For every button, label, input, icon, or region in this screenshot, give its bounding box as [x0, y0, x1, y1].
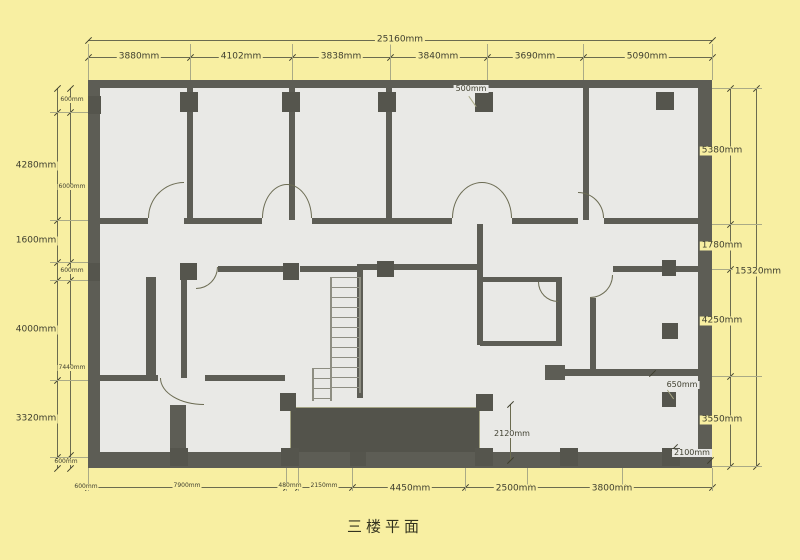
witness-line — [390, 44, 391, 80]
dimension-label: 2100mm — [672, 449, 712, 457]
wall — [613, 266, 698, 272]
wall — [477, 224, 483, 280]
column — [350, 452, 366, 466]
witness-line — [712, 44, 713, 80]
witness-line — [465, 468, 466, 491]
wall — [480, 341, 562, 346]
dimension-label: 2500mm — [494, 485, 538, 494]
witness-line — [50, 262, 88, 263]
dimension-line — [88, 57, 712, 58]
column — [378, 92, 396, 112]
dimension-tick — [67, 465, 74, 472]
dimension-label: 3550mm — [700, 416, 744, 425]
witness-line — [712, 468, 713, 491]
witness-line — [88, 44, 89, 80]
dimension-label: 3320mm — [14, 415, 58, 424]
column — [280, 393, 296, 411]
column — [475, 448, 493, 466]
dimension-label: 4102mm — [219, 53, 263, 62]
staircase — [312, 368, 332, 401]
column — [662, 323, 678, 339]
wall — [545, 365, 565, 380]
floor-plan: 三楼平面 25160mm3880mm4102mm3838mm3840mm3690… — [0, 0, 800, 560]
dimension-label: 4000mm — [14, 326, 58, 335]
column — [475, 92, 493, 112]
wall — [698, 80, 712, 468]
column — [180, 92, 198, 112]
column — [377, 261, 394, 277]
wall — [358, 264, 477, 270]
dimension-tick — [709, 37, 716, 44]
wall — [100, 218, 148, 224]
wall — [184, 218, 262, 224]
column — [476, 394, 493, 411]
dimension-label: 3690mm — [513, 53, 557, 62]
dimension-label: 5090mm — [625, 53, 669, 62]
dimension-label: 15320mm — [733, 268, 783, 277]
dimension-label: 500mm — [454, 85, 489, 93]
dimension-label: 6000mm — [58, 184, 87, 190]
dimension-label: 2150mm — [310, 483, 339, 489]
dimension-label: 25160mm — [375, 36, 425, 45]
column — [656, 92, 674, 110]
witness-line — [712, 466, 762, 467]
witness-line — [352, 468, 353, 491]
column — [170, 448, 188, 466]
column — [88, 263, 100, 281]
dimension-label: 1600mm — [14, 237, 58, 246]
dimension-label: 1780mm — [700, 242, 744, 251]
wall — [300, 266, 358, 272]
floor-plan-title: 三楼平面 — [347, 516, 423, 537]
dimension-label: 7900mm — [173, 483, 202, 489]
witness-line — [712, 88, 762, 89]
witness-line — [50, 280, 88, 281]
witness-line — [292, 44, 293, 80]
dimension-label: 2120mm — [492, 430, 532, 438]
dimension-label: 3880mm — [117, 53, 161, 62]
witness-line — [712, 224, 762, 225]
wall — [205, 375, 285, 381]
dimension-label: 3840mm — [416, 53, 460, 62]
dimension-tick — [54, 465, 61, 472]
dimension-label: 4250mm — [700, 317, 744, 326]
witness-line — [50, 112, 88, 113]
dimension-label: 3838mm — [319, 53, 363, 62]
witness-line — [190, 44, 191, 80]
column — [282, 92, 300, 112]
witness-line — [712, 376, 762, 377]
column — [560, 448, 578, 466]
column — [180, 263, 197, 280]
wall — [218, 266, 283, 272]
column — [662, 260, 676, 276]
wall — [512, 218, 578, 224]
wall — [477, 277, 483, 345]
dimension-label: 600mm — [59, 268, 84, 274]
wall — [181, 280, 187, 378]
column — [283, 263, 299, 280]
wall — [590, 298, 596, 373]
wall — [146, 277, 156, 378]
staircase — [330, 277, 361, 393]
dimension-label: 3800mm — [590, 485, 634, 494]
wall — [312, 218, 452, 224]
wall — [170, 405, 186, 452]
dimension-label: 4280mm — [14, 162, 58, 171]
dimension-line — [756, 88, 757, 466]
dimension-label: 480mm — [277, 483, 302, 489]
column — [88, 96, 101, 114]
dimension-label: 600mm — [73, 484, 98, 490]
witness-line — [50, 380, 88, 381]
wall — [604, 218, 698, 224]
dimension-label: 600mm — [53, 459, 78, 465]
witness-line — [487, 44, 488, 80]
column — [281, 448, 299, 466]
witness-line — [583, 44, 584, 80]
wall — [100, 375, 158, 381]
wall — [558, 369, 698, 376]
dimension-label: 4450mm — [388, 485, 432, 494]
dimension-label: 5380mm — [700, 147, 744, 156]
dimension-label: 600mm — [59, 97, 84, 103]
dimension-label: 7440mm — [58, 365, 87, 371]
wall — [88, 80, 712, 88]
dimension-label: 650mm — [665, 381, 700, 389]
witness-line — [50, 220, 88, 221]
